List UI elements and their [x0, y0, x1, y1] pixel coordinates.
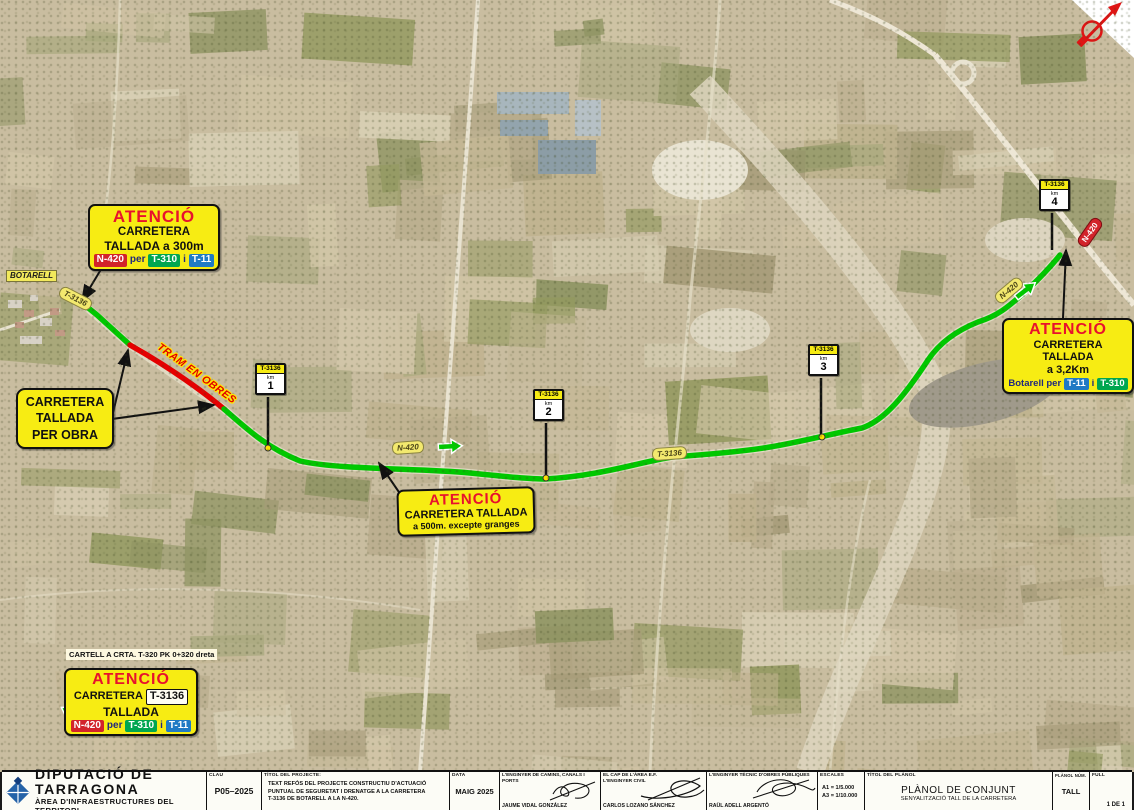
- plan-title: PLÀNOL DE CONJUNT: [901, 785, 1016, 796]
- badge-t310: T-310: [125, 720, 157, 733]
- clau-cell: CLAU P05–2025: [206, 772, 261, 810]
- signature-cell-1: L'ENGINYER DE CAMINS, CANALS I PORTS JAU…: [499, 772, 600, 810]
- cartell-location-note: CARTELL A CRTA. T-320 PK 0+320 dreta: [66, 649, 217, 660]
- road-label-t3136-mid: T-3136: [652, 446, 688, 461]
- badge-t11: T-11: [189, 254, 214, 267]
- km-post-4: T-3136 km 4: [1039, 179, 1070, 211]
- signature-icon: [636, 774, 706, 806]
- signature-icon: [545, 774, 600, 804]
- km-post-1: T-3136 km 1: [255, 363, 286, 395]
- road-closure-plan-sheet: BOTARELL T-3136 T-3136 N-420 N-420 N-420…: [0, 0, 1134, 810]
- diputacio-tarragona-logo: [6, 774, 30, 808]
- date-cell: DATA MAIG 2025: [449, 772, 499, 810]
- attention-sign-east: ATENCIÓ CARRETERA TALLADA a 3,2Km Botare…: [1002, 318, 1134, 394]
- plan-subtitle: SENYALITZACIÓ TALL DE LA CARRETERA: [901, 796, 1016, 802]
- org-dept: ÀREA D'INFRAESTRUCTURES DEL TERRITORI: [35, 797, 206, 810]
- km-post-2: T-3136 km 2: [533, 389, 564, 421]
- attention-sign-mid: ATENCIÓ CARRETERA TALLADA a 500m. except…: [396, 486, 535, 537]
- km-post-3: T-3136 km 3: [808, 344, 839, 376]
- road-label-n420-mid: N-420: [392, 440, 425, 455]
- badge-t310: T-310: [148, 254, 180, 267]
- road-closed-for-works-box: CARRETERA TALLADA PER OBRA: [16, 388, 114, 449]
- project-title-cell: TÍTOL DEL PROJECTE: TEXT REFÓS DEL PROJE…: [261, 772, 449, 810]
- title-block: DIPUTACIÓ DE TARRAGONA ÀREA D'INFRAESTRU…: [2, 770, 1132, 810]
- attention-sign-botarell: ATENCIÓ CARRETERA TALLADA a 300m N-420 p…: [88, 204, 220, 271]
- sheet-cell: FULL 1 DE 1: [1089, 772, 1128, 810]
- badge-t310: T-310: [1097, 378, 1127, 390]
- signature-cell-3: L'ENGINYER TÈCNIC D'OBRES PÚBLIQUES RAÜL…: [706, 772, 817, 810]
- plan-title-cell: TÍTOL DEL PLÀNOL PLÀNOL DE CONJUNT SENYA…: [864, 772, 1052, 810]
- badge-n420: N-420: [94, 254, 127, 267]
- attention-sign-southwest: ATENCIÓ CARRETERA T-3136 TALLADA N-420 p…: [64, 668, 198, 736]
- badge-t3136: T-3136: [146, 689, 188, 705]
- town-label-botarell: BOTARELL: [6, 270, 57, 282]
- org-cell: DIPUTACIÓ DE TARRAGONA ÀREA D'INFRAESTRU…: [2, 772, 206, 810]
- signature-icon: [749, 774, 817, 804]
- badge-t11: T-11: [1064, 378, 1089, 390]
- badge-t11: T-11: [166, 720, 191, 733]
- badge-n420: N-420: [71, 720, 104, 733]
- scale-a3: A3 = 1/10.000: [822, 792, 857, 800]
- scale-a1: A1 = 1/5.000: [822, 784, 857, 792]
- plan-number-cell: PLÀNOL NÚM. TALL: [1052, 772, 1089, 810]
- org-name: DIPUTACIÓ DE TARRAGONA: [35, 767, 206, 797]
- scales-cell: ESCALES A1 = 1/5.000 A3 = 1/10.000: [817, 772, 864, 810]
- signature-cell-2: EL CAP DE L'ÀREA E.F. L'ENGINYER CIVIL C…: [600, 772, 706, 810]
